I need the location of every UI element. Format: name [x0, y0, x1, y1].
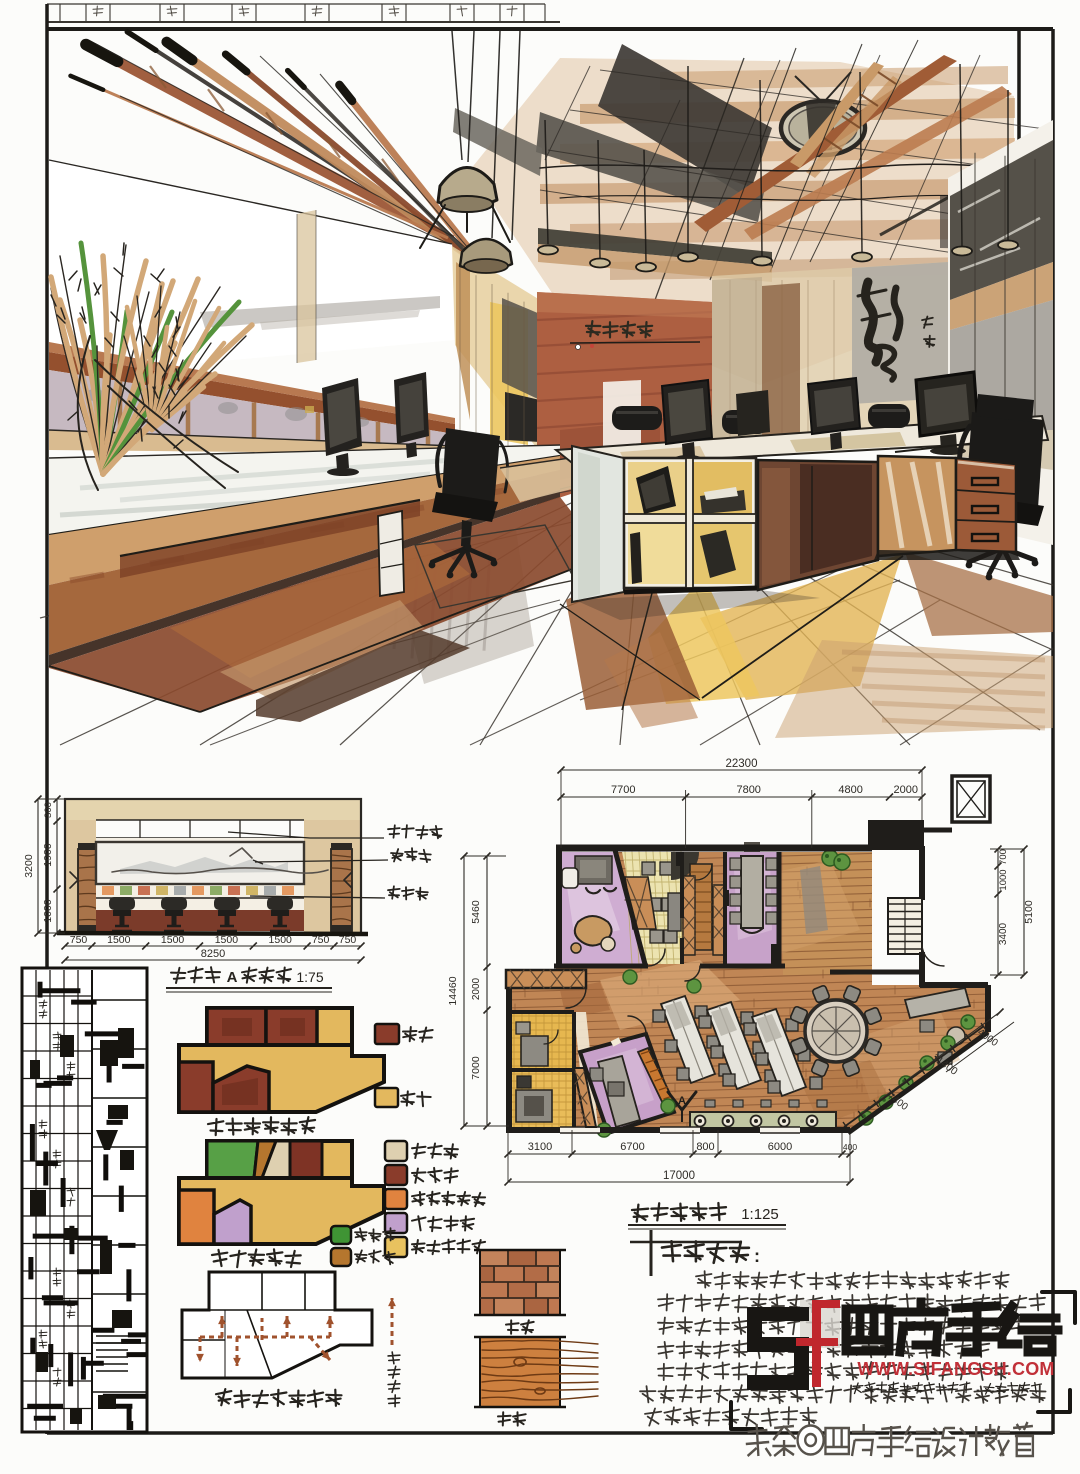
- svg-text:7800: 7800: [736, 784, 760, 796]
- svg-text:14460: 14460: [447, 976, 459, 1005]
- svg-text:1900: 1900: [42, 843, 54, 867]
- svg-text:WWW.SIFANGSH.COM: WWW.SIFANGSH.COM: [857, 1359, 1054, 1379]
- svg-text:1500: 1500: [269, 934, 293, 946]
- svg-text:3200: 3200: [23, 854, 35, 878]
- svg-text:1:125: 1:125: [741, 1206, 779, 1223]
- svg-text:2000: 2000: [894, 784, 918, 796]
- svg-text:17000: 17000: [663, 1170, 695, 1182]
- svg-text:5460: 5460: [470, 900, 482, 924]
- svg-text:A: A: [678, 1095, 686, 1107]
- svg-text:1:75: 1:75: [296, 969, 323, 985]
- svg-text:7000: 7000: [470, 1056, 482, 1080]
- svg-text:750: 750: [339, 934, 357, 946]
- svg-text:1500: 1500: [107, 934, 131, 946]
- svg-text:8250: 8250: [201, 948, 225, 960]
- svg-text:750: 750: [70, 934, 88, 946]
- svg-text:1000: 1000: [998, 869, 1009, 890]
- svg-text:-: -: [976, 1384, 980, 1396]
- svg-text:1500: 1500: [161, 934, 185, 946]
- svg-text:800: 800: [696, 1141, 714, 1153]
- svg-text:1000: 1000: [42, 899, 54, 923]
- svg-text:5100: 5100: [1023, 900, 1035, 924]
- svg-text:A: A: [227, 969, 238, 986]
- svg-text:6000: 6000: [768, 1141, 792, 1153]
- svg-text:7700: 7700: [611, 784, 635, 796]
- svg-text:750: 750: [312, 934, 330, 946]
- svg-text:300: 300: [43, 802, 54, 818]
- svg-text::: :: [754, 1246, 760, 1266]
- svg-text:1500: 1500: [215, 934, 239, 946]
- svg-text:700: 700: [998, 849, 1009, 865]
- svg-text:3400: 3400: [998, 922, 1009, 945]
- svg-text:2000: 2000: [471, 977, 482, 1000]
- svg-text:6700: 6700: [620, 1141, 644, 1153]
- svg-text:4800: 4800: [838, 784, 862, 796]
- svg-text:22300: 22300: [726, 758, 758, 770]
- svg-text:3100: 3100: [528, 1141, 552, 1153]
